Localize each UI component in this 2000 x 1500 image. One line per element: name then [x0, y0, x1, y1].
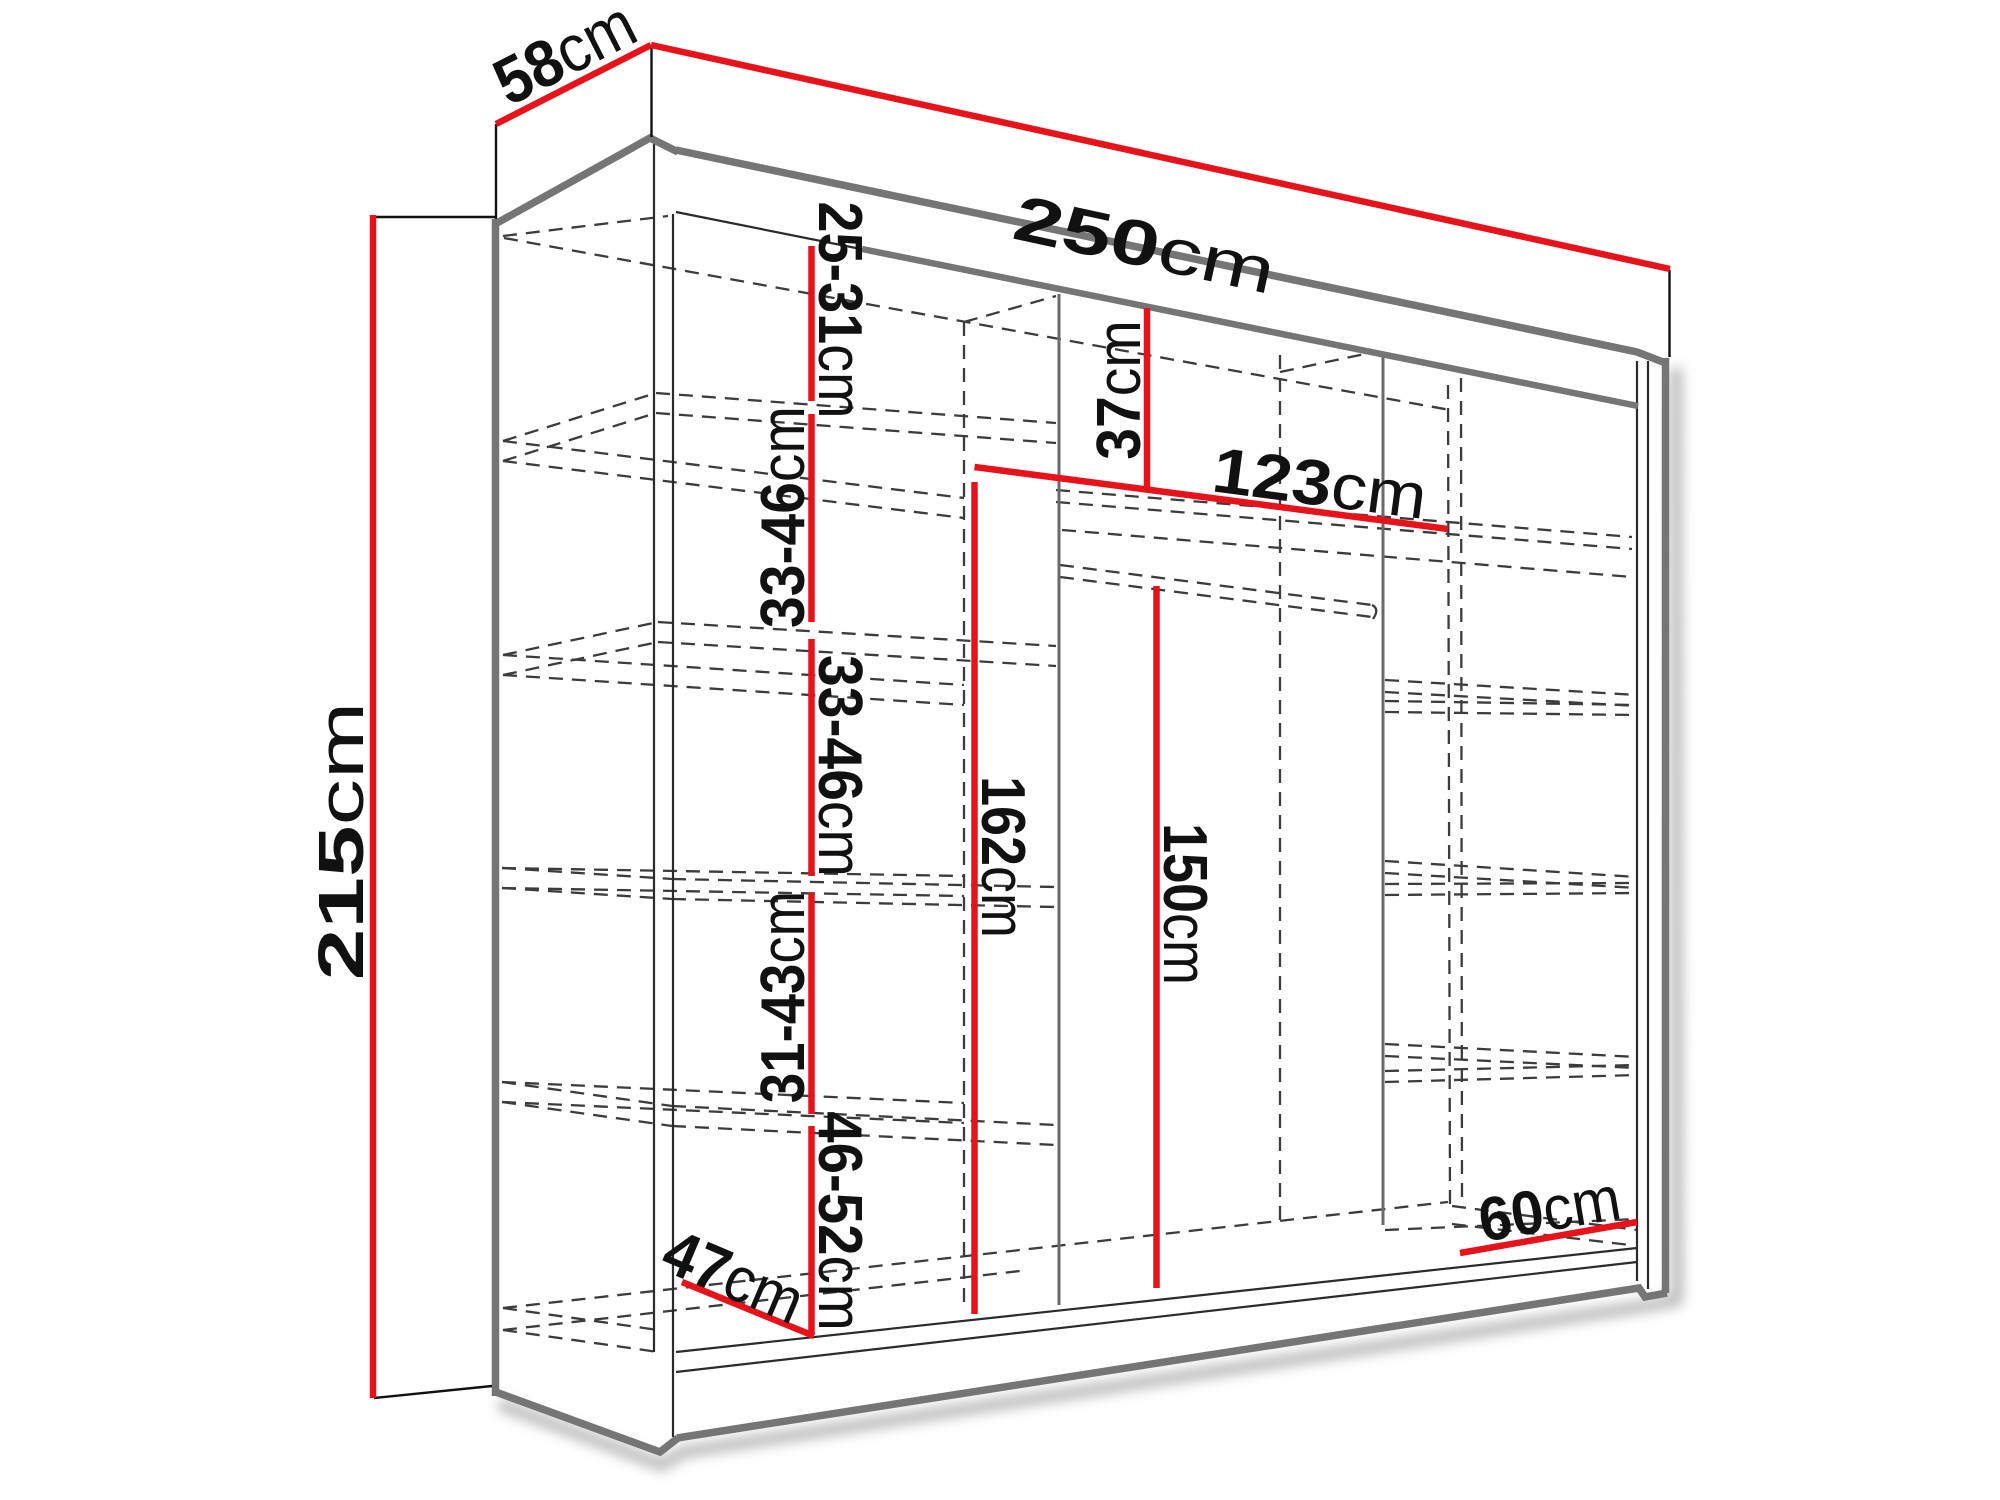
svg-text:215cm: 215cm: [305, 702, 376, 981]
svg-text:150cm: 150cm: [1150, 823, 1219, 985]
svg-text:37cm: 37cm: [1084, 320, 1154, 459]
svg-text:33-46cm: 33-46cm: [805, 655, 875, 877]
svg-text:33-46cm: 33-46cm: [748, 406, 818, 628]
svg-text:162cm: 162cm: [968, 776, 1037, 938]
svg-text:46-52cm: 46-52cm: [805, 1111, 875, 1330]
svg-text:31-43cm: 31-43cm: [749, 891, 818, 1103]
svg-text:25-31cm: 25-31cm: [805, 201, 873, 418]
